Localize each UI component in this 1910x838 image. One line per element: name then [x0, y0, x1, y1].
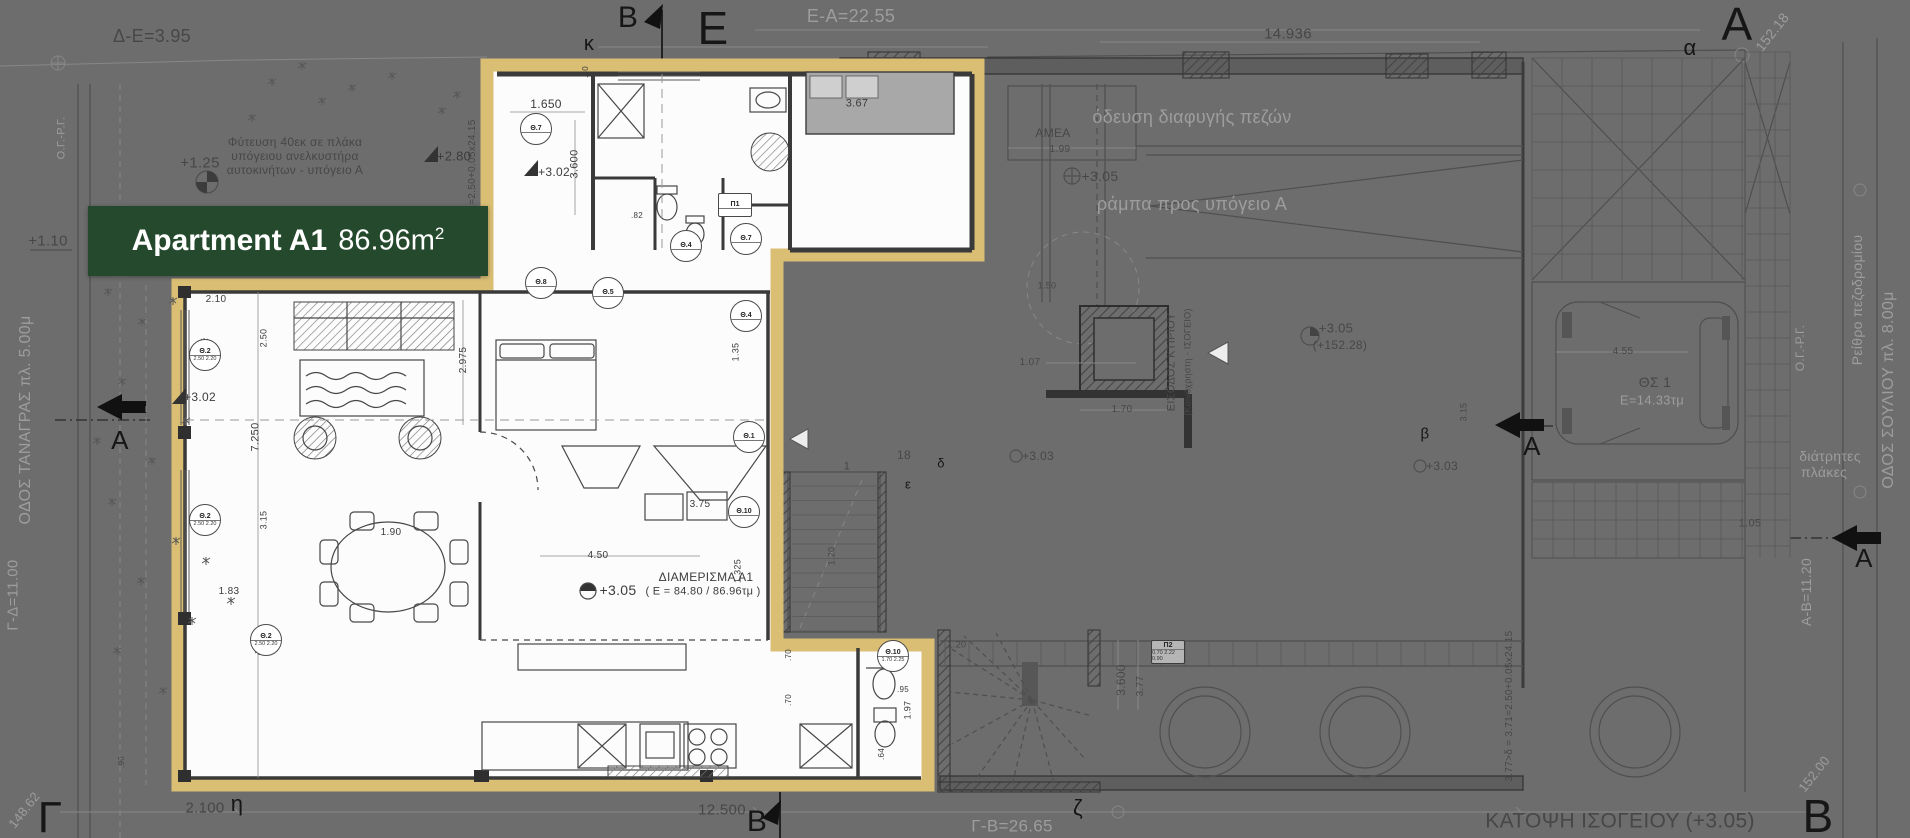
door-symbol-Θ.10: Θ.10 — [728, 496, 760, 528]
door-symbol-Θ.1: Θ.1 — [733, 421, 765, 453]
door-symbol-Θ.4: Θ.4 — [730, 300, 762, 332]
door-symbol-Θ.10: Θ.101.70 2.25 — [877, 640, 909, 672]
door-symbol-Θ.7: Θ.7 — [520, 113, 552, 145]
apartment-area-value: 86.96m2 — [338, 224, 444, 258]
door-symbol-Θ.5: Θ.5 — [592, 277, 624, 309]
floorplan-canvas: Apartment A1 86.96m2 ΕΑΓΒΒΒΑΑΑκαηζδεβΕ-Α… — [0, 0, 1910, 838]
door-symbol-Θ.2: Θ.22.50 2.20 — [250, 624, 282, 656]
door-symbol-Π1: Π1 — [718, 193, 752, 217]
superscript-2: 2 — [435, 224, 444, 243]
door-symbol-Π2: Π20.70 2.22 0.90 — [1151, 640, 1185, 664]
door-symbol-Θ.7: Θ.7 — [730, 223, 762, 255]
door-symbol-Θ.4: Θ.4 — [670, 230, 702, 262]
door-symbol-Θ.8: Θ.8 — [525, 267, 557, 299]
apartment-name: Apartment A1 — [132, 224, 328, 258]
floorplan-drawing — [0, 0, 1910, 838]
door-symbol-Θ.2: Θ.22.50 2.20 — [189, 339, 221, 371]
apartment-label[interactable]: Apartment A1 86.96m2 — [88, 206, 488, 276]
door-symbol-Θ.2: Θ.22.50 2.20 — [189, 504, 221, 536]
